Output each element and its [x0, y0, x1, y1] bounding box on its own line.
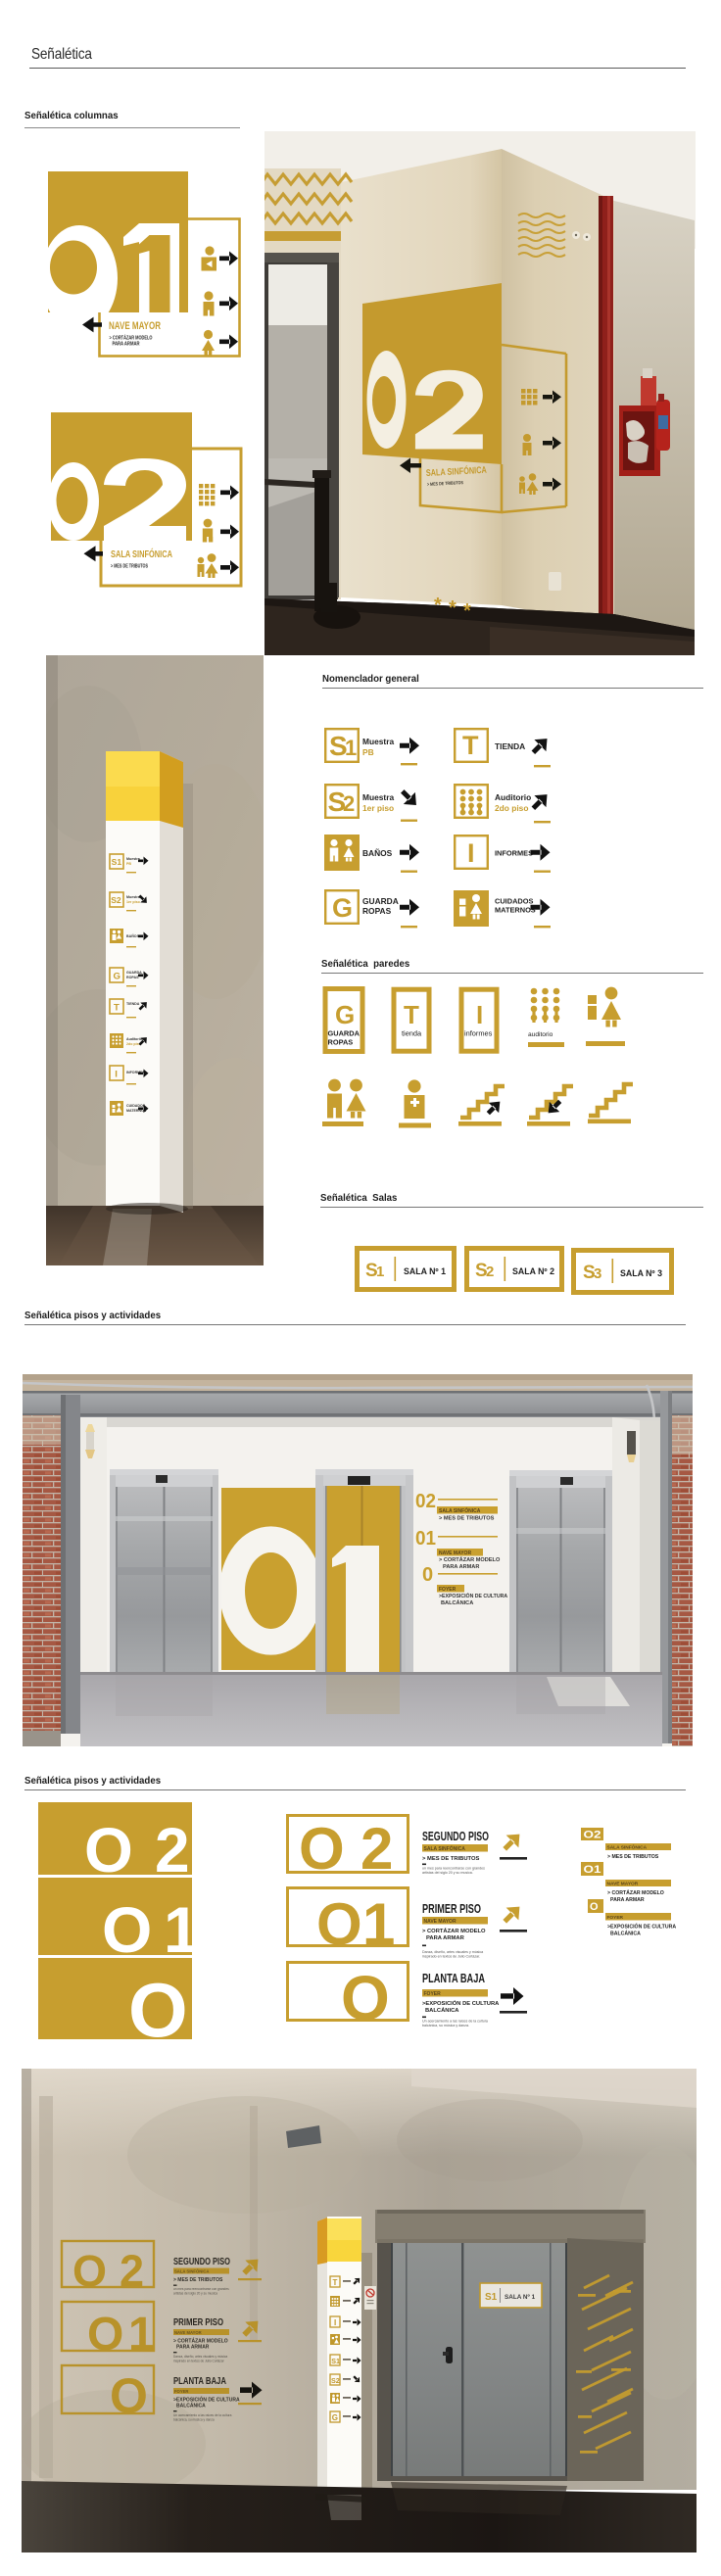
svg-text:G: G	[332, 2413, 338, 2422]
svg-text:>EXPOSICIÓN DE CULTURA: >EXPOSICIÓN DE CULTURA	[422, 1999, 500, 2007]
svg-text:SALA SINFÓNICA: SALA SINFÓNICA	[424, 1844, 466, 1852]
svg-text:I: I	[334, 2318, 336, 2327]
svg-text:SALA SINFÓNICA: SALA SINFÓNICA	[439, 1506, 481, 1514]
svg-text:T: T	[333, 2278, 338, 2287]
svg-text:BALCÁNICA: BALCÁNICA	[425, 2007, 459, 2014]
svg-text:I: I	[476, 1000, 483, 1029]
svg-text:NAVE MAYOR: NAVE MAYOR	[424, 1919, 457, 1925]
svg-text:PARA ARMAR: PARA ARMAR	[610, 1897, 645, 1903]
svg-text:G: G	[114, 972, 120, 982]
svg-text:G: G	[335, 1000, 355, 1029]
svg-text:GUARDA: GUARDA	[328, 1029, 360, 1038]
svg-text:2do piso: 2do piso	[495, 803, 528, 813]
svg-text:artistas del siglo 20 y su mus: artistas del siglo 20 y su musica.	[422, 1871, 473, 1875]
svg-text:TIENDA: TIENDA	[495, 741, 525, 751]
svg-text:O: O	[341, 1963, 390, 2033]
svg-text:GUARDA: GUARDA	[126, 971, 142, 975]
svg-text:O: O	[316, 1891, 362, 1957]
svg-text:O1: O1	[584, 1864, 601, 1876]
svg-text:balcánica, su música y danza.: balcánica, su música y danza.	[422, 2024, 469, 2027]
svg-text:01: 01	[415, 1528, 436, 1550]
svg-text:SEGUNDO PISO: SEGUNDO PISO	[422, 1830, 489, 1843]
svg-text:artistas del siglo 20 y su mus: artistas del siglo 20 y su musica	[173, 2292, 217, 2296]
svg-text:I: I	[115, 1070, 118, 1080]
svg-text:*: *	[463, 600, 471, 622]
svg-text:> MES DE TRIBUTOS: > MES DE TRIBUTOS	[173, 2277, 223, 2283]
svg-text:auditorio: auditorio	[528, 1031, 553, 1038]
svg-text:NAVE MAYOR: NAVE MAYOR	[607, 1882, 639, 1887]
svg-text:NAVE MAYOR: NAVE MAYOR	[109, 320, 161, 332]
svg-text:O: O	[84, 1815, 133, 1885]
svg-text:> MES DE TRIBUTOS: > MES DE TRIBUTOS	[422, 1856, 479, 1862]
svg-text:> CORTÁZAR MODELO: > CORTÁZAR MODELO	[110, 335, 153, 342]
svg-text:CUIDADOS: CUIDADOS	[126, 1104, 146, 1108]
svg-text:O: O	[102, 1893, 152, 1966]
svg-text:PB: PB	[126, 862, 131, 866]
svg-text:O: O	[87, 2309, 123, 2361]
svg-text:> CORTÁZAR MODELO: > CORTÁZAR MODELO	[607, 1889, 664, 1896]
svg-text:Danza, diseño, artes visuales: Danza, diseño, artes visuales y música	[173, 2355, 227, 2359]
svg-text:un mes para reencontrarse con: un mes para reencontrarse con grandes	[422, 1867, 485, 1871]
svg-text:O2: O2	[584, 1830, 601, 1841]
svg-text:1: 1	[164, 1893, 200, 1966]
svg-text:SALA Nº 3: SALA Nº 3	[620, 1268, 662, 1278]
svg-text:1er piso: 1er piso	[362, 803, 394, 813]
svg-text:PLANTA BAJA: PLANTA BAJA	[422, 1972, 485, 1985]
svg-text:> CORTÁZAR MODELO: > CORTÁZAR MODELO	[173, 2338, 228, 2345]
svg-text:PLANTA BAJA: PLANTA BAJA	[173, 2375, 226, 2387]
svg-text:0: 0	[422, 1564, 433, 1586]
svg-text:O: O	[110, 2368, 148, 2423]
svg-text:SEGUNDO PISO: SEGUNDO PISO	[173, 2256, 230, 2267]
svg-text:FOYER: FOYER	[174, 2389, 188, 2394]
svg-text:FOYER: FOYER	[424, 1991, 442, 1997]
svg-text:NAVE MAYOR: NAVE MAYOR	[174, 2330, 202, 2335]
svg-text:PARA ARMAR: PARA ARMAR	[113, 342, 140, 348]
svg-text:MATERNOS: MATERNOS	[495, 906, 536, 915]
svg-text:PRIMER PISO: PRIMER PISO	[173, 2316, 223, 2328]
svg-text:S2: S2	[331, 2376, 340, 2385]
svg-text:2: 2	[343, 791, 355, 816]
svg-text:INFORMES: INFORMES	[495, 849, 533, 858]
svg-text:S1: S1	[112, 857, 122, 867]
svg-text:> CORTÁZAR MODELO: > CORTÁZAR MODELO	[439, 1556, 501, 1563]
svg-text:S2: S2	[111, 895, 121, 905]
svg-text:BALCÁNICA: BALCÁNICA	[610, 1931, 641, 1937]
svg-text:SALA Nº 2: SALA Nº 2	[512, 1266, 554, 1276]
svg-text:T: T	[462, 731, 479, 760]
svg-text:2: 2	[155, 1815, 190, 1885]
svg-text:*: *	[449, 597, 457, 619]
svg-text:S1: S1	[485, 2292, 498, 2303]
svg-text:BAÑOS: BAÑOS	[362, 848, 393, 858]
svg-text:Un acercamiento a las raices d: Un acercamiento a las raices de la cultu…	[173, 2413, 232, 2417]
svg-text:S1: S1	[331, 2357, 340, 2365]
svg-text:Un acercamiento a las raices d: Un acercamiento a las raices de la cultu…	[422, 2020, 488, 2024]
svg-text:TIENDA: TIENDA	[126, 1002, 140, 1006]
svg-text:CUIDADOS: CUIDADOS	[495, 897, 533, 906]
svg-text:BAÑOS: BAÑOS	[126, 933, 140, 938]
svg-text:>EXPOSICIÓN DE CULTURA: >EXPOSICIÓN DE CULTURA	[439, 1592, 507, 1599]
svg-text:> MES DE TRIBUTOS: > MES DE TRIBUTOS	[439, 1516, 495, 1522]
svg-text:Muestra: Muestra	[126, 895, 141, 899]
svg-text:Muestra: Muestra	[362, 792, 394, 802]
svg-text:> MES DE TRIBUTOS: > MES DE TRIBUTOS	[607, 1854, 659, 1860]
svg-text:PRIMER PISO: PRIMER PISO	[422, 1902, 481, 1916]
svg-text:Auditorio: Auditorio	[126, 1037, 143, 1041]
svg-text:>EXPOSICIÓN DE CULTURA: >EXPOSICIÓN DE CULTURA	[607, 1923, 676, 1931]
svg-text:O: O	[590, 1901, 599, 1913]
svg-text:SALA SINFÓNICA: SALA SINFÓNICA	[174, 2269, 209, 2274]
svg-text:PARA ARMAR: PARA ARMAR	[426, 1935, 465, 1941]
svg-text:ROPAS: ROPAS	[362, 906, 392, 916]
svg-text:1: 1	[345, 736, 357, 760]
svg-text:BALCÁNICA: BALCÁNICA	[441, 1599, 473, 1606]
svg-text:2: 2	[360, 1816, 393, 1882]
svg-text:*: *	[434, 595, 442, 616]
svg-text:>EXPOSICIÓN DE CULTURA: >EXPOSICIÓN DE CULTURA	[173, 2396, 240, 2404]
svg-text:2: 2	[486, 1264, 494, 1280]
svg-text:ROPAS: ROPAS	[126, 976, 139, 979]
svg-text:1: 1	[128, 2309, 155, 2361]
svg-text:O: O	[128, 1967, 188, 2042]
svg-text:NAVE MAYOR: NAVE MAYOR	[439, 1550, 471, 1556]
svg-text:3: 3	[594, 1265, 601, 1282]
svg-text:T: T	[114, 1003, 120, 1014]
svg-text:O: O	[72, 2246, 107, 2296]
svg-text:ROPAS: ROPAS	[328, 1038, 354, 1047]
svg-text:Auditorio: Auditorio	[495, 792, 531, 802]
svg-text:inspirado en textos de Julio C: inspirado en textos de Julio Cortázar.	[422, 1955, 480, 1959]
svg-text:balcánica, su música y danza: balcánica, su música y danza	[173, 2418, 215, 2422]
svg-text:BALCÁNICA: BALCÁNICA	[176, 2403, 206, 2409]
svg-text:I: I	[467, 838, 475, 868]
svg-text:> MES DE TRIBUTOS: > MES DE TRIBUTOS	[111, 564, 148, 570]
svg-text:FOYER: FOYER	[607, 1915, 624, 1921]
svg-text:GUARDA: GUARDA	[362, 896, 399, 906]
svg-text:Muestra: Muestra	[362, 737, 394, 746]
svg-text:G: G	[332, 893, 353, 923]
svg-text:FOYER: FOYER	[439, 1587, 457, 1593]
svg-text:SALA SINFÓNICA: SALA SINFÓNICA	[111, 548, 172, 560]
svg-text:> CORTÁZAR MODELO: > CORTÁZAR MODELO	[422, 1928, 486, 1934]
svg-text:2: 2	[120, 2246, 144, 2296]
svg-text:Danza, diseño, artes visuales: Danza, diseño, artes visuales y música	[422, 1950, 483, 1954]
svg-text:informes: informes	[464, 1029, 493, 1038]
svg-text:O: O	[299, 1816, 345, 1882]
svg-text:SALA Nº 1: SALA Nº 1	[404, 1266, 446, 1276]
svg-text:PARA ARMAR: PARA ARMAR	[176, 2345, 210, 2351]
svg-text:inspirado en textos de Julio C: inspirado en textos de Julio Cortázar	[173, 2360, 225, 2363]
svg-text:un mes para reencontrarse con: un mes para reencontrarse con grandes	[173, 2287, 229, 2291]
svg-text:PARA ARMAR: PARA ARMAR	[443, 1564, 479, 1570]
svg-text:1: 1	[362, 1891, 395, 1957]
svg-text:1: 1	[376, 1264, 384, 1280]
svg-text:T: T	[404, 1000, 419, 1029]
svg-text:SALA Nº 1: SALA Nº 1	[505, 2294, 536, 2301]
svg-text:tienda: tienda	[402, 1029, 422, 1038]
svg-text:02: 02	[415, 1491, 436, 1512]
svg-text:PB: PB	[362, 747, 374, 757]
svg-text:1er piso: 1er piso	[126, 900, 141, 904]
